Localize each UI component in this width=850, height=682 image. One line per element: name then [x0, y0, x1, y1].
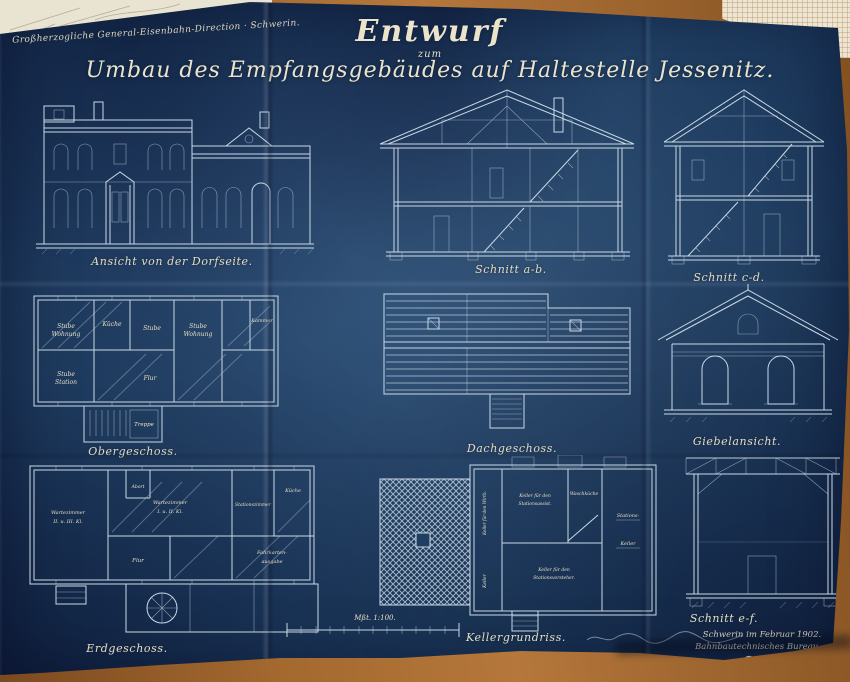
caption-roof-plan: Dachgeschoss. — [467, 442, 557, 455]
scale-bar: Mßt. 1:100. — [283, 612, 468, 640]
room-label: Stube — [57, 371, 75, 378]
room-label: Treppe — [134, 422, 155, 428]
signature-flourish — [724, 652, 820, 670]
room-label: Fahrkarten- — [256, 550, 287, 556]
room-label: Keller — [482, 573, 488, 588]
pencil-signature — [585, 628, 745, 648]
room-label: Wohnung — [184, 331, 213, 338]
room-label: Keller für den Wirth. — [482, 491, 487, 536]
room-label: Abort — [131, 484, 145, 490]
room-label: Küche — [284, 488, 301, 494]
room-label: II. u. III. Kl. — [52, 519, 83, 525]
room-label: Stations- — [617, 513, 640, 519]
room-label: Flur — [143, 375, 158, 382]
drawing-section-ab — [372, 84, 642, 264]
room-label: Küche — [102, 321, 122, 328]
caption-ground-floor: Erdgeschoss. — [86, 642, 167, 655]
drawing-street-elevation — [30, 86, 320, 266]
drawing-section-ef — [678, 446, 848, 624]
room-label: Wartezimmer — [153, 500, 188, 506]
scale-label: Mßt. 1:100. — [353, 614, 396, 622]
room-label: Stationsvorsteher. — [533, 575, 575, 581]
room-label: Keller für den — [518, 493, 551, 499]
room-label: Stube — [143, 325, 161, 332]
room-label: Waschküche — [570, 491, 599, 497]
drawing-gable-elevation — [650, 282, 846, 436]
room-label: Keller für den — [537, 567, 570, 573]
blueprint-photo: Großherzogliche General-Eisenbahn-Direct… — [0, 0, 850, 682]
room-label: Kammer — [250, 318, 273, 324]
caption-gable-elevation: Giebelansicht. — [693, 435, 781, 448]
room-label: Stube — [57, 323, 75, 330]
room-label: Wartezimmer — [51, 510, 86, 516]
caption-cellar-plan: Kellergrundriss. — [466, 631, 566, 644]
room-label: Stationszimmer — [235, 502, 272, 508]
room-label: ausgabe — [261, 559, 282, 565]
room-label: Keller — [619, 541, 636, 547]
drawing-section-cd — [652, 80, 840, 278]
room-label: I. u. II. Kl. — [156, 509, 183, 515]
room-label: Stube — [189, 323, 207, 330]
caption-street-elevation: Ansicht von der Dorfseite. — [91, 255, 253, 268]
drawing-ground-floor-plan: Wartezimmer II. u. III. Kl. Abort Wartez… — [22, 452, 322, 644]
caption-upper-floor: Obergeschoss. — [88, 445, 177, 458]
drawing-cellar-plan: Keller für den Wirth. Keller für den Sta… — [372, 455, 664, 633]
caption-section-ef: Schnitt e-f. — [690, 612, 758, 625]
room-label: Station — [55, 379, 77, 386]
caption-section-cd: Schnitt c-d. — [693, 271, 764, 284]
room-label: Wohnung — [52, 331, 81, 338]
drawing-upper-floor-plan: Stube Wohnung Küche Stube Stube Wohnung … — [28, 288, 284, 446]
room-label: Flur — [131, 558, 144, 564]
drawing-roof-plan — [372, 286, 644, 448]
title-entwurf: Entwurf — [356, 14, 505, 49]
blueprint-sheet: Großherzogliche General-Eisenbahn-Direct… — [0, 0, 850, 682]
room-label: Stationsassist. — [518, 501, 552, 507]
caption-section-ab: Schnitt a-b. — [475, 263, 547, 276]
